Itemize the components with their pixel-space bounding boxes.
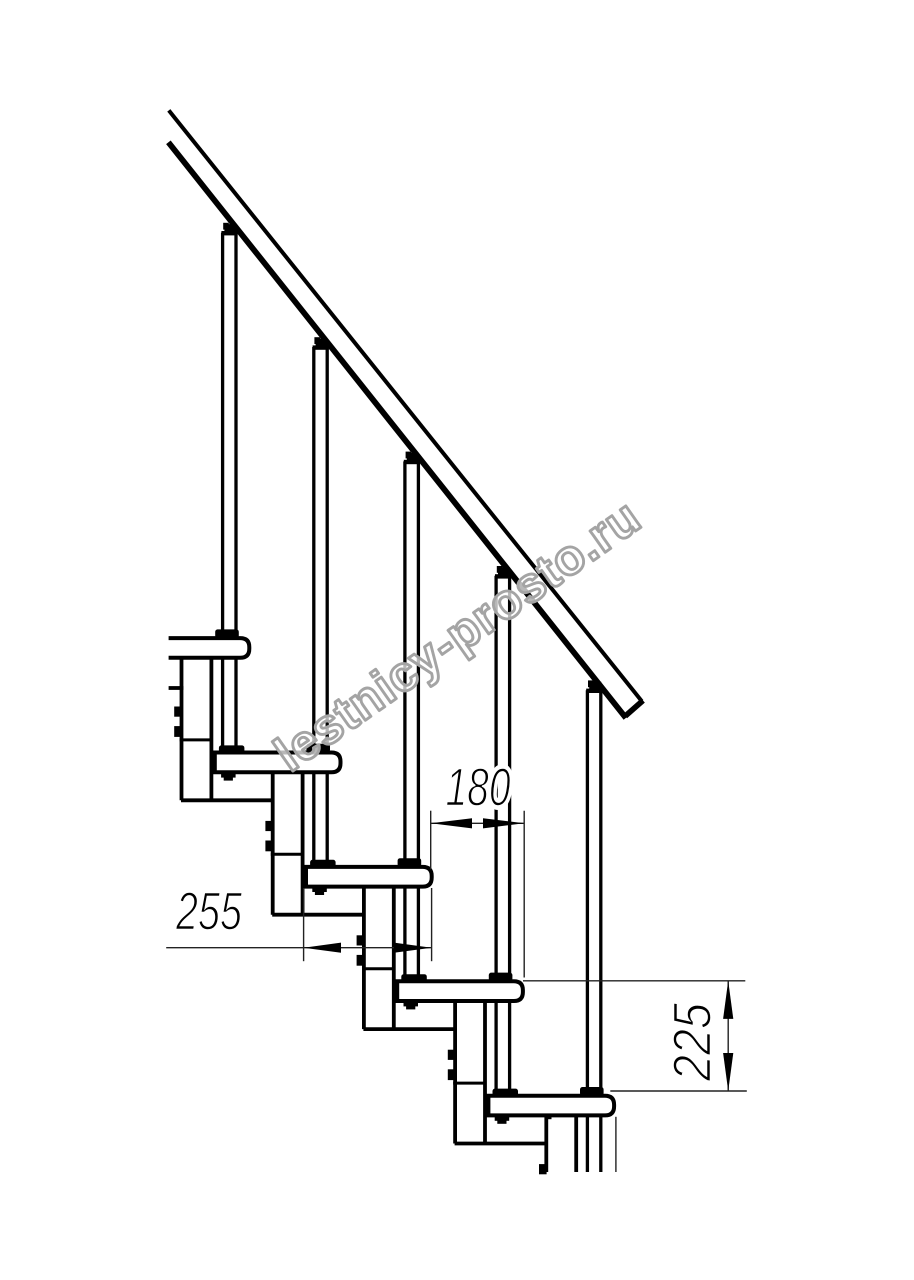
svg-text:225: 225 — [663, 1002, 723, 1082]
svg-text:180: 180 — [446, 758, 511, 818]
svg-text:255: 255 — [175, 882, 242, 942]
